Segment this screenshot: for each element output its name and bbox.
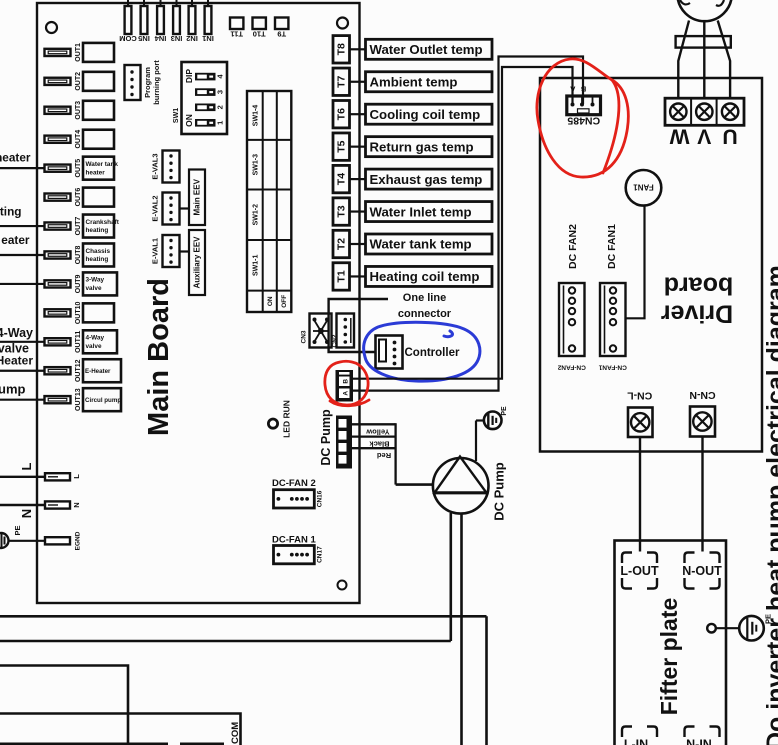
svg-text:eater: eater [1,233,30,247]
svg-text:EGND: EGND [75,531,82,550]
svg-text:Driver: Driver [661,300,734,328]
svg-text:CN3: CN3 [301,330,308,343]
svg-text:Black: Black [369,440,390,449]
svg-text:Main EEV: Main EEV [193,178,202,215]
svg-text:-Heater: -Heater [0,354,33,368]
svg-text:1: 1 [216,121,225,125]
svg-text:L: L [19,462,34,470]
svg-text:heater: heater [86,169,106,176]
svg-text:CN17: CN17 [317,546,324,563]
svg-text:Do inverter heat pump electric: Do inverter heat pump electrical diagram [762,265,778,745]
svg-text:valve: valve [86,285,102,292]
svg-text:DC FAN2: DC FAN2 [567,224,579,269]
svg-text:Crankshaft: Crankshaft [86,219,120,226]
svg-text:OFF: OFF [281,295,288,308]
svg-text:CN-N: CN-N [689,389,715,401]
svg-text:PE: PE [13,525,22,535]
svg-text:valve: valve [86,343,102,350]
svg-text:Main Board: Main Board [143,278,175,436]
svg-text:N-IN: N-IN [686,738,712,745]
svg-text:IN4: IN4 [154,34,167,43]
svg-text:DC Pump: DC Pump [492,462,507,521]
svg-text:CN-FAN1: CN-FAN1 [598,364,627,371]
svg-text:Circul pump: Circul pump [85,397,121,404]
svg-text:L: L [72,474,81,479]
svg-text:N: N [19,509,34,518]
svg-text:T3: T3 [336,205,348,217]
svg-text:IN2: IN2 [186,34,198,43]
svg-text:DC Pump: DC Pump [319,409,333,466]
svg-text:Water Outlet temp: Water Outlet temp [370,42,483,57]
svg-text:L-OUT: L-OUT [620,564,659,578]
svg-text:Auxiliary EEV: Auxiliary EEV [193,236,202,289]
svg-text:Heating coil temp: Heating coil temp [370,269,480,284]
svg-text:V: V [697,125,711,148]
svg-text:4-Way: 4-Way [86,335,105,342]
svg-text:OUT6: OUT6 [75,188,82,207]
svg-text:Exhaust gas temp: Exhaust gas temp [370,172,483,187]
svg-text:E-Heater: E-Heater [85,368,111,375]
svg-text:OUT2: OUT2 [75,72,82,91]
svg-text:Water tank temp: Water tank temp [370,237,472,252]
svg-text:Fifter plate: Fifter plate [656,598,682,716]
svg-text:3: 3 [216,90,225,94]
svg-text:DC-FAN 1: DC-FAN 1 [272,535,317,546]
svg-text:CN485: CN485 [567,115,600,127]
svg-text:Program: Program [143,67,152,98]
svg-text:T9: T9 [277,30,286,39]
svg-text:IN1: IN1 [202,34,214,43]
svg-text:A: A [343,391,350,396]
svg-text:connector: connector [398,308,452,320]
svg-text:OUT9: OUT9 [75,274,82,293]
svg-text:Chassis: Chassis [86,248,111,255]
svg-text:LED RUN: LED RUN [282,400,292,438]
svg-text:DC-FAN 2: DC-FAN 2 [272,478,316,489]
svg-text:Water tank: Water tank [86,161,119,168]
svg-text:DC FAN1: DC FAN1 [606,224,618,269]
svg-text:T11: T11 [230,30,243,39]
svg-text:OUT8: OUT8 [75,246,82,265]
svg-text:heater: heater [0,151,31,165]
svg-text:E-VAL3: E-VAL3 [151,153,160,179]
svg-text:B: B [580,85,586,94]
svg-text:IN5: IN5 [138,34,150,43]
svg-text:T5: T5 [336,140,348,152]
svg-text:2: 2 [216,105,225,109]
svg-text:T4: T4 [336,173,348,185]
svg-text:CN16: CN16 [317,490,324,507]
svg-text:E-VAL2: E-VAL2 [151,195,160,221]
svg-text:T8: T8 [336,43,348,55]
svg-text:FAN1: FAN1 [633,183,654,192]
svg-text:N-OUT: N-OUT [682,564,722,578]
svg-text:heating: heating [86,227,109,234]
svg-text:IN3: IN3 [171,34,183,43]
svg-text:ON: ON [184,114,194,127]
svg-text:SW1-1: SW1-1 [253,255,260,277]
svg-text:T6: T6 [336,108,348,120]
svg-text:Red: Red [376,451,391,460]
svg-text:board: board [664,272,733,300]
svg-text:T2: T2 [336,238,348,250]
svg-text:3-Way: 3-Way [86,277,105,284]
svg-text:OUT7: OUT7 [75,217,82,236]
svg-text:burning port: burning port [152,60,161,105]
svg-text:E-VAL1: E-VAL1 [151,238,160,264]
svg-text:OUT4: OUT4 [75,130,82,149]
svg-text:OUT11: OUT11 [75,331,82,353]
svg-text:OUT12: OUT12 [75,359,82,382]
svg-text:T1: T1 [336,270,348,282]
svg-text:Water Inlet temp: Water Inlet temp [370,204,472,219]
svg-text:T10: T10 [253,30,266,39]
svg-text:SW1-4: SW1-4 [253,105,260,127]
svg-text:heating: heating [86,256,109,263]
svg-text:L-IN: L-IN [624,738,648,745]
svg-text:Return gas temp: Return gas temp [370,139,474,154]
svg-text:CN-L: CN-L [627,390,653,402]
svg-text:PE: PE [501,406,508,416]
svg-text:U: U [723,125,738,148]
svg-text:Cooling coil temp: Cooling coil temp [370,107,481,122]
svg-text:B: B [343,379,350,384]
svg-text:OUT13: OUT13 [75,388,82,411]
svg-text:OUT1: OUT1 [75,43,82,62]
svg-text:ON: ON [267,296,274,306]
svg-text:T7: T7 [336,75,348,87]
svg-text:Controller: Controller [405,347,460,359]
svg-text:Ambient temp: Ambient temp [370,74,458,89]
svg-text:SW1: SW1 [173,108,180,123]
svg-text:COM: COM [119,34,137,43]
svg-text:W: W [670,125,690,148]
svg-text:OUT3: OUT3 [75,101,82,120]
svg-text:Pump: Pump [0,382,26,397]
svg-text:A: A [570,85,576,94]
svg-text:SW1-2: SW1-2 [253,204,260,226]
svg-text:SW1-3: SW1-3 [253,154,260,176]
svg-text:COM: COM [230,722,241,744]
svg-text:OUT10: OUT10 [75,301,82,324]
svg-text:DIP: DIP [184,69,194,84]
svg-text:N: N [72,502,81,507]
svg-text:Yellow: Yellow [366,428,390,437]
svg-text:ting: ting [0,205,22,219]
svg-text:One line: One line [403,292,446,304]
svg-text:4-Way: 4-Way [0,326,33,340]
svg-text:CN-FAN2: CN-FAN2 [557,364,586,371]
svg-text:OUT5: OUT5 [75,159,82,178]
